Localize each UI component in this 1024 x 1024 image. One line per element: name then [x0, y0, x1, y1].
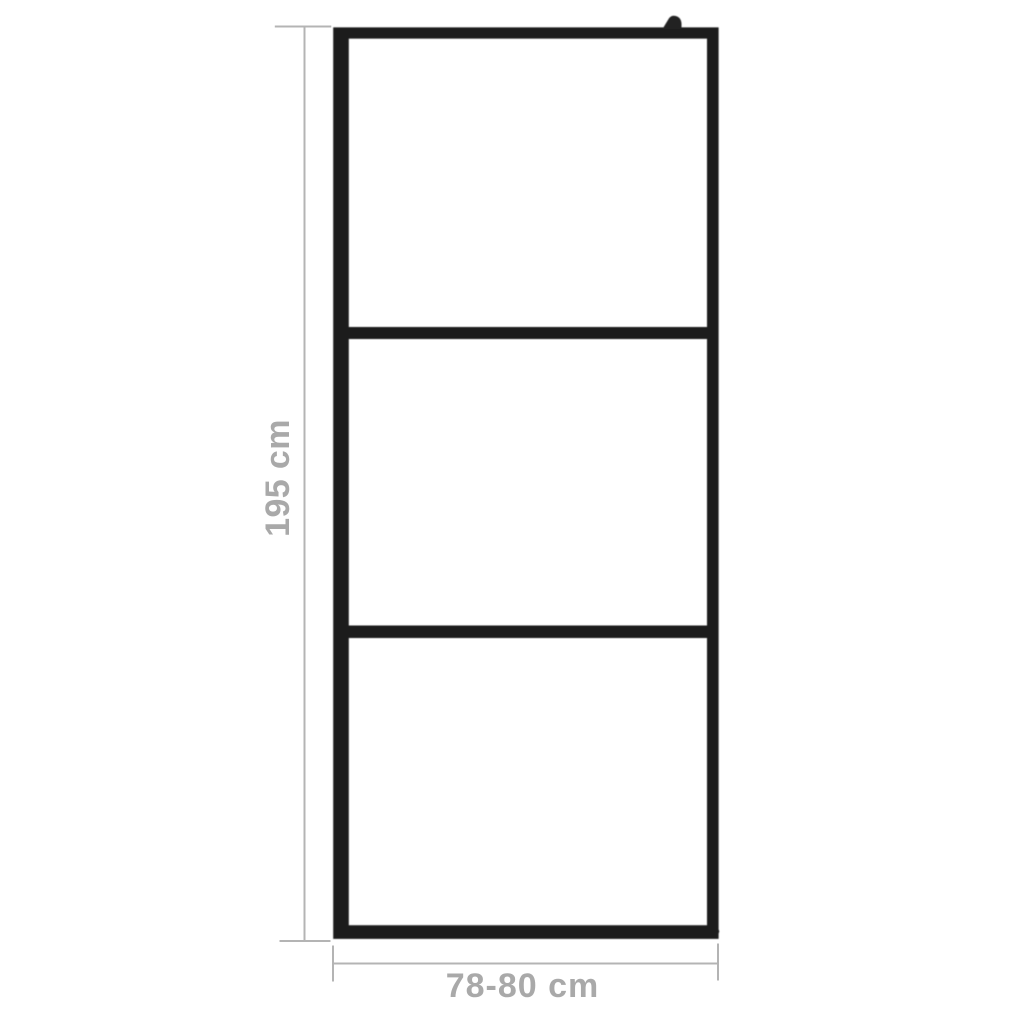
svg-text:78-80 cm: 78-80 cm: [446, 967, 600, 1005]
svg-text:195 cm: 195 cm: [259, 419, 297, 537]
